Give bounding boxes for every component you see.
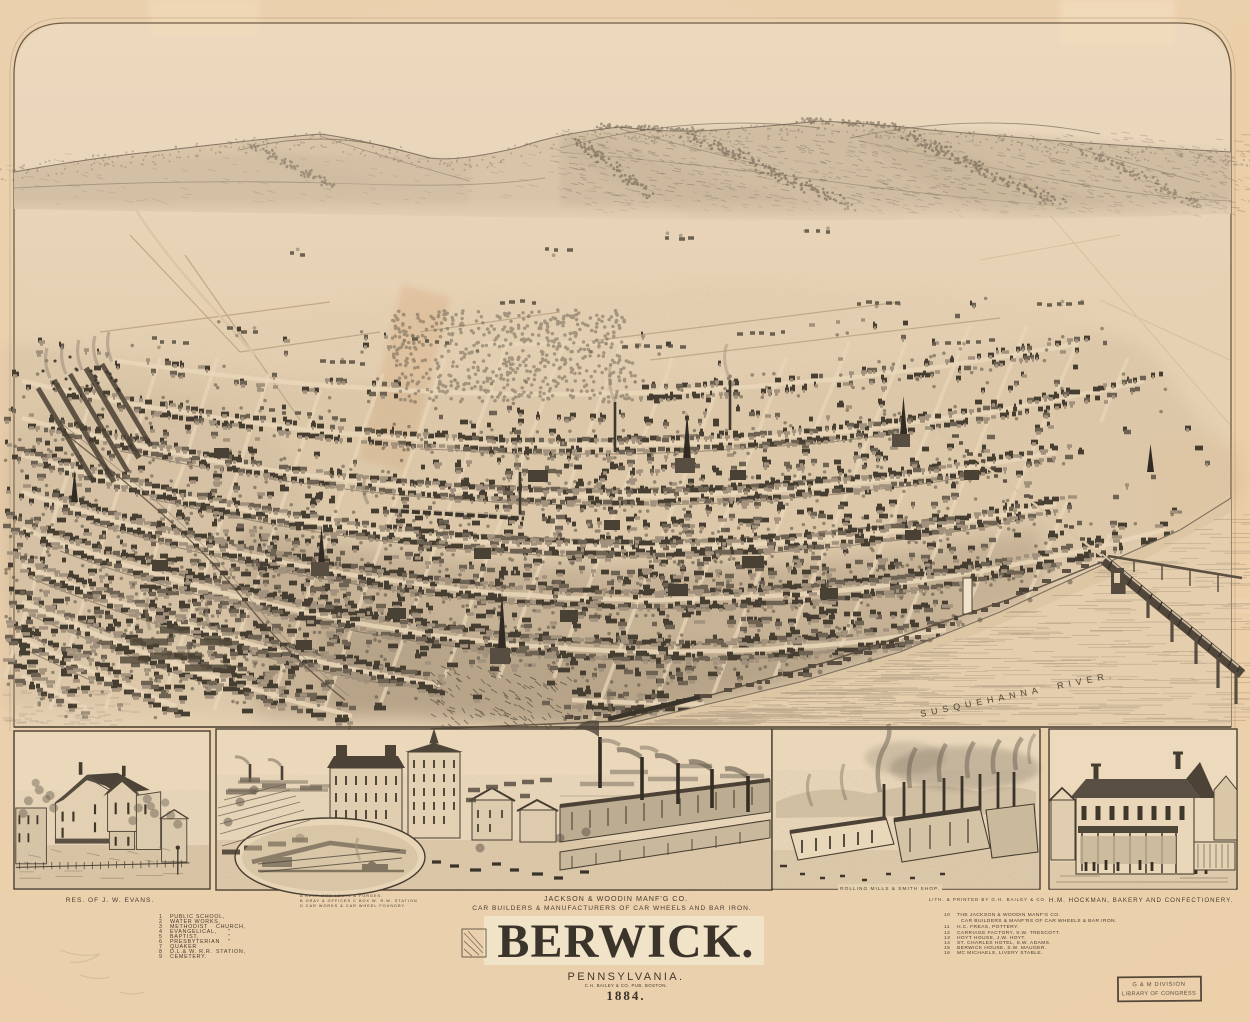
svg-text:H.M. HOCKMAN, BAKERY AND C: H.M. HOCKMAN, BAKERY AND CONFECTIONERY. [1049,897,1233,904]
svg-text:JACKSON & WOODIN MANF'G CO: JACKSON & WOODIN MANF'G CO. [544,894,688,903]
svg-text:11: 11 [944,924,950,930]
svg-text:CHURCH,: CHURCH, [216,924,246,930]
svg-text:CAR BUILDERS & MANUFACTURER: CAR BUILDERS & MANUFACTURERS OF CAR WHEE… [472,905,752,912]
svg-text:16: 16 [944,950,950,956]
svg-text:": " [228,939,231,945]
svg-text:10: 10 [944,912,950,918]
svg-text:H.C. FREAS, POTTERY.: H.C. FREAS, POTTERY. [957,924,1019,930]
svg-text:CEMETERY.: CEMETERY. [170,954,207,960]
svg-text:CAR BUILDERS & MANF'RS OF CAR: CAR BUILDERS & MANF'RS OF CAR WHEELS & B… [961,918,1117,924]
svg-text:B GRAY & OFFICES C BOX W.: B GRAY & OFFICES C BOX W. R.W. STATION [300,899,418,903]
svg-text:BERWICK.: BERWICK. [497,915,754,968]
svg-text:D CAR WORKS & CAR WHEEL FOU: D CAR WORKS & CAR WHEEL FOUNDRY. [300,904,407,908]
svg-text:ROLLING MILLS & SMITH SHOP: ROLLING MILLS & SMITH SHOP. [840,886,940,892]
svg-text:9: 9 [159,954,163,960]
svg-text:RES. OF J. W. EVANS.: RES. OF J. W. EVANS. [66,897,154,904]
svg-text:STATION,: STATION, [216,949,246,955]
svg-text:G & M DIVISION: G & M DIVISION [1132,982,1185,988]
svg-text:MC MICHAELS, LIVERY STABLE.: MC MICHAELS, LIVERY STABLE. [957,950,1043,956]
svg-text:LITH. & PRINTED BY G.H. BA: LITH. & PRINTED BY G.H. BAILEY & CO. [929,897,1047,902]
svg-text:1884.: 1884. [606,988,645,1003]
svg-text:LIBRARY OF CONGRESS: LIBRARY OF CONGRESS [1122,991,1196,998]
svg-text:PENNSYLVANIA.: PENNSYLVANIA. [568,971,685,983]
svg-text:THE JACKSON & WOODIN MANF'G: THE JACKSON & WOODIN MANF'G CO. [957,912,1060,918]
svg-text:A KELP MRS LEWIS & FORGES.: A KELP MRS LEWIS & FORGES. [300,894,383,898]
